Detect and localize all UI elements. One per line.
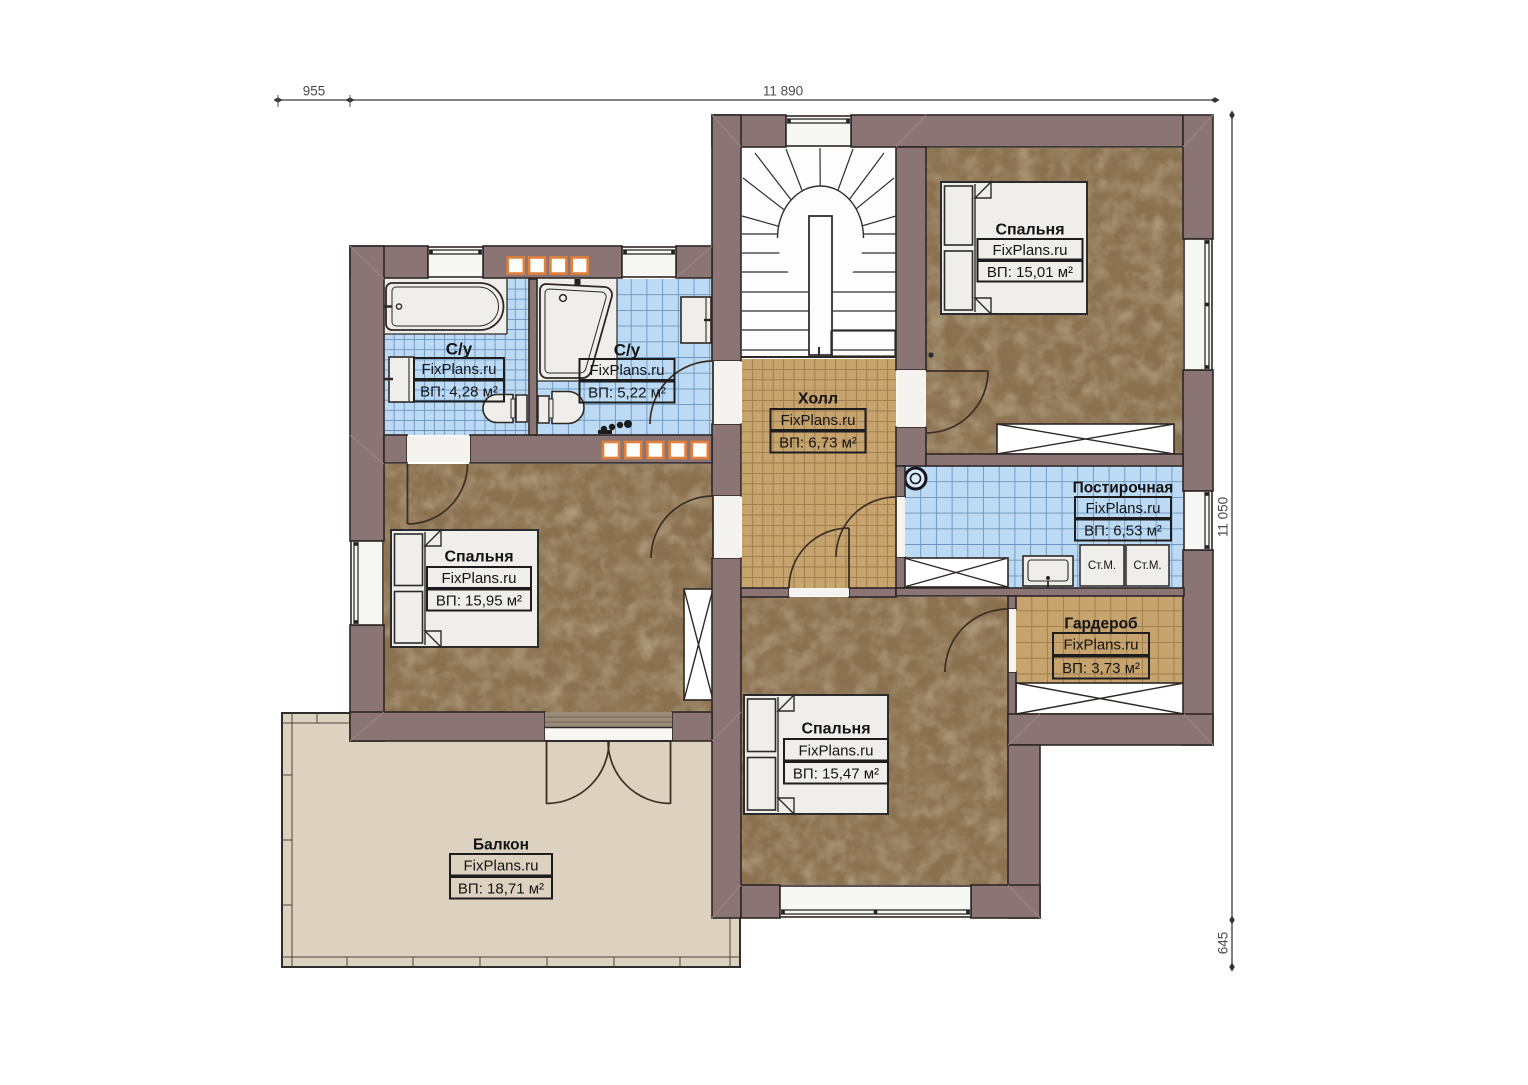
svg-text:FixPlans.ru: FixPlans.ru bbox=[421, 361, 496, 378]
svg-text:11 890: 11 890 bbox=[763, 84, 803, 99]
svg-text:Ст.М.: Ст.М. bbox=[1133, 560, 1161, 572]
svg-text:FixPlans.ru: FixPlans.ru bbox=[780, 412, 855, 429]
svg-text:ВП: 3,73 м²: ВП: 3,73 м² bbox=[1062, 660, 1140, 677]
svg-text:FixPlans.ru: FixPlans.ru bbox=[1063, 637, 1138, 654]
svg-text:11 050: 11 050 bbox=[1216, 497, 1231, 537]
svg-text:ВП: 6,53 м²: ВП: 6,53 м² bbox=[1084, 523, 1162, 540]
svg-text:FixPlans.ru: FixPlans.ru bbox=[1085, 500, 1160, 517]
svg-text:ВП: 18,71 м²: ВП: 18,71 м² bbox=[458, 880, 544, 897]
svg-text:Ст.М.: Ст.М. bbox=[1088, 560, 1116, 572]
svg-text:ВП: 15,47 м²: ВП: 15,47 м² bbox=[793, 765, 879, 782]
svg-text:645: 645 bbox=[1216, 932, 1231, 955]
svg-text:Постирочная: Постирочная bbox=[1073, 480, 1174, 497]
svg-text:FixPlans.ru: FixPlans.ru bbox=[992, 242, 1067, 259]
svg-text:ВП: 5,22 м²: ВП: 5,22 м² bbox=[588, 385, 666, 402]
svg-text:Спальня: Спальня bbox=[995, 222, 1064, 239]
svg-text:ВП: 15,95 м²: ВП: 15,95 м² bbox=[436, 593, 522, 610]
svg-text:Балкон: Балкон bbox=[473, 837, 529, 854]
svg-text:FixPlans.ru: FixPlans.ru bbox=[463, 857, 538, 874]
svg-text:ВП: 4,28 м²: ВП: 4,28 м² bbox=[420, 384, 498, 401]
svg-text:Спальня: Спальня bbox=[444, 549, 513, 566]
svg-text:FixPlans.ru: FixPlans.ru bbox=[798, 742, 873, 759]
svg-text:Холл: Холл bbox=[798, 391, 838, 408]
svg-text:955: 955 bbox=[303, 84, 326, 99]
svg-text:FixPlans.ru: FixPlans.ru bbox=[441, 570, 516, 587]
svg-text:Спальня: Спальня bbox=[801, 721, 870, 738]
svg-text:Гардероб: Гардероб bbox=[1064, 616, 1137, 633]
svg-text:FixPlans.ru: FixPlans.ru bbox=[589, 362, 664, 379]
svg-text:С/у: С/у bbox=[446, 340, 473, 359]
svg-text:ВП: 15,01 м²: ВП: 15,01 м² bbox=[987, 264, 1073, 281]
svg-text:С/у: С/у bbox=[614, 341, 641, 360]
svg-text:ВП: 6,73 м²: ВП: 6,73 м² bbox=[779, 435, 857, 452]
